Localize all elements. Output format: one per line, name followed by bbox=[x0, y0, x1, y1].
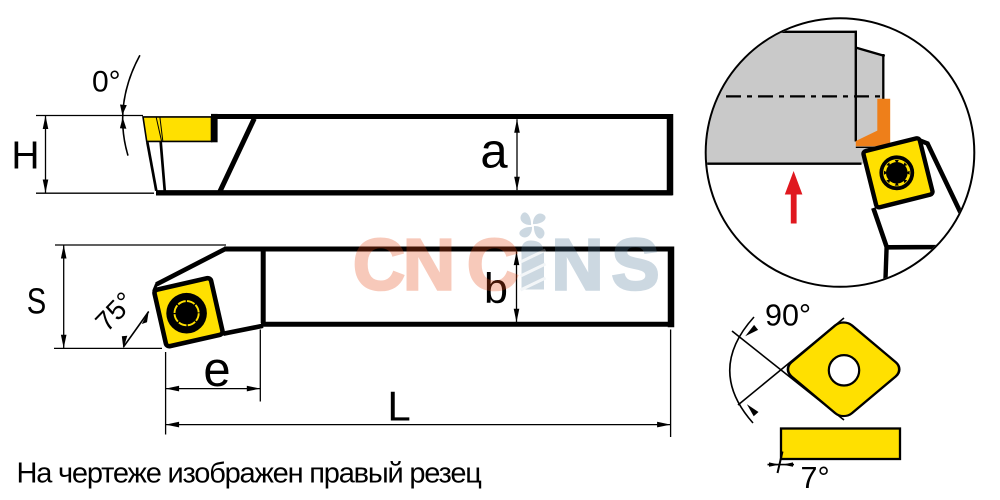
svg-text:90°: 90° bbox=[765, 299, 811, 333]
svg-text:7°: 7° bbox=[801, 461, 830, 495]
svg-text:0°: 0° bbox=[92, 66, 121, 99]
svg-text:L: L bbox=[387, 383, 410, 430]
svg-text:C: C bbox=[467, 226, 519, 306]
svg-text:e: e bbox=[203, 343, 230, 397]
svg-text:S: S bbox=[27, 282, 46, 323]
svg-text:C: C bbox=[353, 226, 405, 306]
svg-text:N: N bbox=[552, 226, 604, 306]
svg-text:N: N bbox=[403, 226, 455, 306]
svg-text:На чертеже изображен правый ре: На чертеже изображен правый резец bbox=[17, 457, 482, 489]
svg-text:a: a bbox=[480, 124, 508, 178]
svg-text:H: H bbox=[11, 135, 39, 178]
svg-text:75°: 75° bbox=[89, 286, 140, 337]
svg-text:S: S bbox=[612, 226, 660, 306]
